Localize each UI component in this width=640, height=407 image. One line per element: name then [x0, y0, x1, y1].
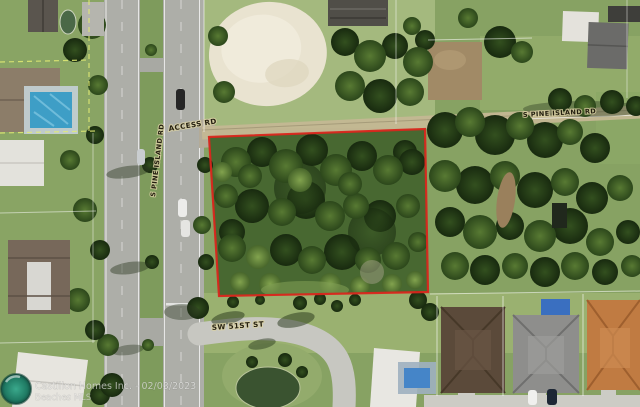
shed-roof [552, 203, 567, 228]
watermark-mls-text: Beaches MLS [35, 393, 91, 403]
driveway [82, 2, 104, 36]
car-white-driveway [528, 390, 537, 405]
house-brown-roof [441, 307, 505, 393]
car-dark-driveway [547, 389, 557, 405]
main-road [104, 0, 204, 407]
car-white-2 [181, 220, 190, 237]
watermark-brokerage-text: Castillon Homes Inc. - 02/03/2023 [35, 381, 196, 392]
aerial-photo-canvas: ACCESS RD S PINE ISLAND RD S PINE ISLAND… [0, 0, 640, 407]
house-orange-roof [587, 300, 640, 390]
aerial-photo: ACCESS RD S PINE ISLAND RD S PINE ISLAND… [0, 0, 640, 407]
island-pond [236, 367, 300, 407]
swimming-pool [404, 368, 430, 388]
garden-pond [60, 10, 76, 34]
parcel-tree-canopy [209, 129, 428, 299]
car-white [178, 199, 187, 217]
car-silver [137, 149, 145, 165]
barn-roof [328, 0, 388, 26]
house-white-left [0, 140, 44, 186]
car-dark [176, 89, 185, 110]
house-brown-left [8, 240, 70, 314]
